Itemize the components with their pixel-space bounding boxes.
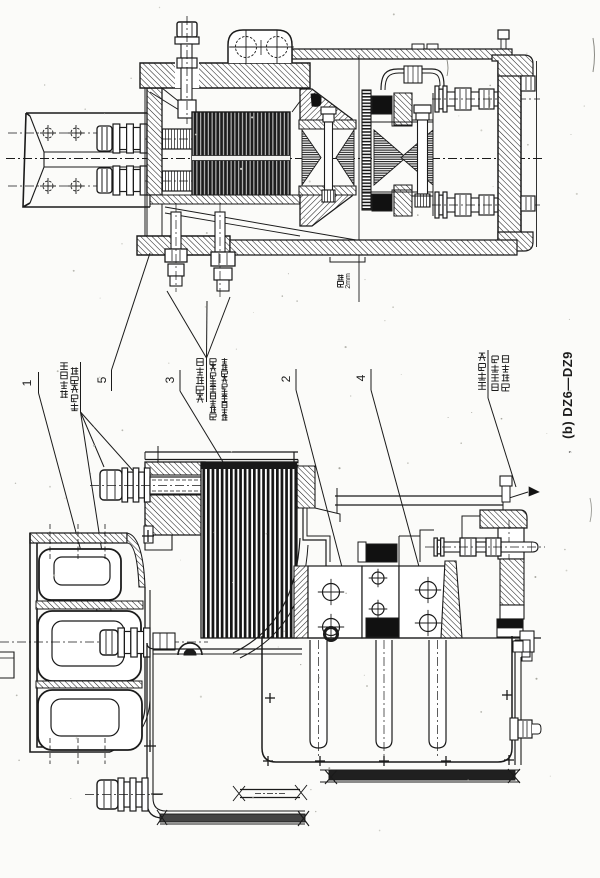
- svg-text:,: ,: [562, 451, 573, 454]
- svg-text:1: 1: [20, 379, 34, 386]
- svg-text:2mm: 2mm: [345, 273, 352, 289]
- svg-text:2: 2: [279, 375, 293, 382]
- svg-text:(b) DZ6—DZ9: (b) DZ6—DZ9: [560, 351, 575, 439]
- svg-text:3: 3: [163, 376, 177, 383]
- svg-text:5: 5: [95, 376, 109, 383]
- svg-text:4: 4: [354, 374, 368, 381]
